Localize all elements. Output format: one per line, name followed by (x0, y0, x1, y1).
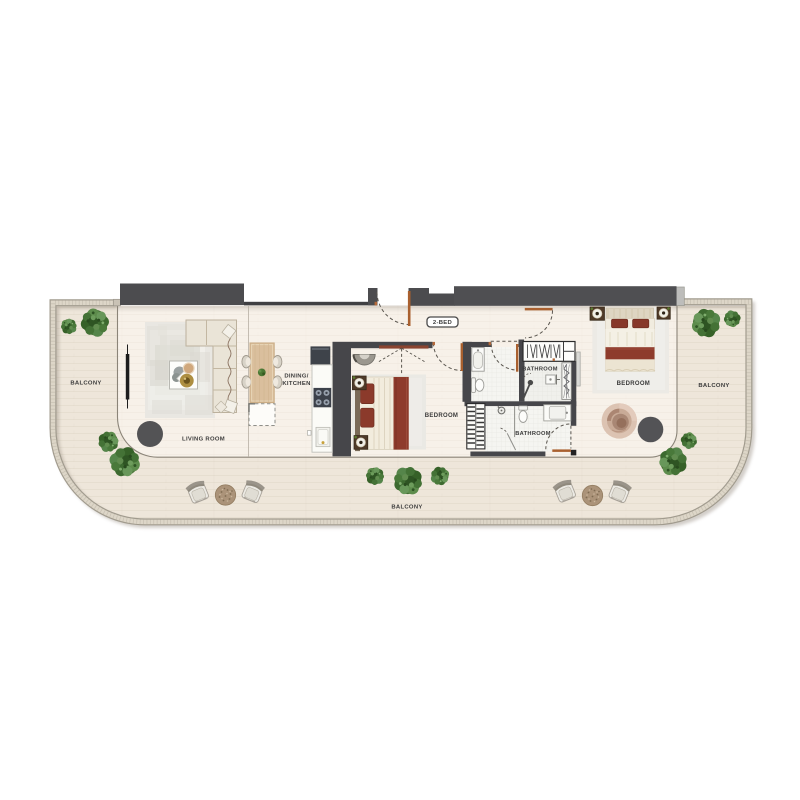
svg-text:LIVING ROOM: LIVING ROOM (182, 436, 225, 442)
svg-text:BATHROOM: BATHROOM (522, 367, 557, 373)
svg-text:BALCONY: BALCONY (391, 505, 422, 511)
svg-text:DINING/: DINING/ (284, 373, 308, 379)
svg-text:BEDROOM: BEDROOM (425, 413, 458, 419)
svg-text:BEDROOM: BEDROOM (617, 381, 650, 387)
svg-text:BALCONY: BALCONY (70, 381, 101, 387)
svg-text:BATHROOM: BATHROOM (515, 431, 550, 437)
svg-text:2-BED: 2-BED (433, 320, 452, 326)
svg-text:BALCONY: BALCONY (698, 383, 729, 389)
svg-text:KITCHEN: KITCHEN (282, 381, 310, 387)
